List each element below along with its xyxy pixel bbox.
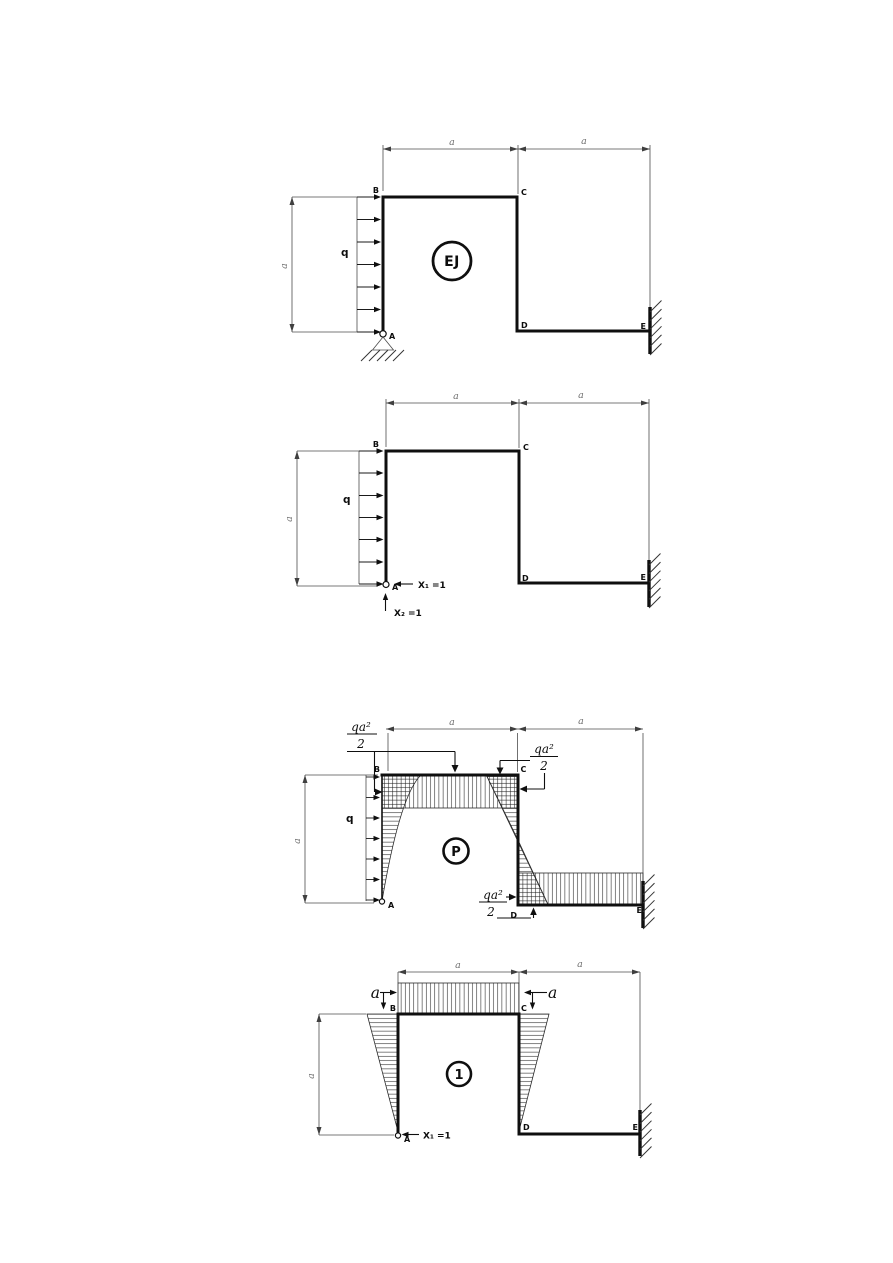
fixed-support-E — [649, 554, 661, 609]
dim-label-a: a — [284, 516, 295, 522]
node-label-B: B — [390, 1004, 396, 1013]
node-label-A: A — [392, 583, 399, 592]
moment-denominator: 2 — [356, 737, 365, 751]
load-state-label: P — [451, 845, 461, 860]
dim-label-a: a — [292, 838, 303, 844]
redundant-x2-label: X₂ =1 — [394, 609, 422, 619]
load-label: q — [343, 494, 351, 506]
released-pin-A — [383, 582, 389, 588]
dim-label-a: a — [453, 391, 459, 402]
distributed-load-q: q — [346, 774, 380, 902]
unit-state-badge: 1 — [447, 1062, 471, 1086]
figure-primary-system: a a a q X₁ =1 — [284, 390, 661, 619]
moment-region-column-AB — [367, 1014, 398, 1132]
node-label-C: C — [521, 765, 527, 774]
load-state-badge: P — [444, 839, 469, 864]
released-pin-A — [379, 899, 384, 904]
dim-label-a: a — [449, 717, 455, 728]
ordinate-label: a — [548, 984, 557, 1002]
node-label-E: E — [641, 322, 646, 331]
node-label-E: E — [633, 1123, 638, 1132]
dim-label-a: a — [455, 960, 461, 971]
node-label-B: B — [374, 765, 380, 774]
redundant-x1-label: X₁ =1 — [418, 581, 446, 591]
node-label-D: D — [510, 911, 517, 920]
structural-analysis-worksheet: a a a q — [0, 0, 893, 1263]
unit-state-label: 1 — [454, 1068, 463, 1083]
distributed-load-q: q — [343, 448, 384, 586]
load-label: q — [341, 247, 349, 259]
node-label-B: B — [373, 186, 379, 195]
node-label-D: D — [522, 574, 529, 583]
pin-support-A — [361, 331, 404, 361]
dim-label-a: a — [449, 137, 455, 148]
stiffness-badge: EJ — [433, 242, 471, 280]
moment-denominator: 2 — [539, 759, 548, 773]
figure-m1-diagram: a a a a a — [306, 959, 652, 1158]
node-label-D: D — [521, 321, 528, 330]
moment-numerator: qa² — [351, 720, 371, 734]
node-label-A: A — [388, 901, 395, 910]
distributed-load-q: q — [341, 194, 381, 334]
moment-denominator: 2 — [486, 905, 495, 919]
node-label-C: C — [523, 443, 529, 452]
dim-label-a: a — [306, 1073, 317, 1079]
frame-members — [398, 1014, 640, 1134]
released-pin-A — [395, 1133, 400, 1138]
moment-region-column-CD — [519, 1014, 549, 1131]
ordinate-a-at-C: a — [524, 984, 557, 1010]
node-label-E: E — [637, 906, 642, 915]
moment-region-beam-DE — [518, 873, 643, 905]
fixed-support-E — [643, 875, 655, 930]
node-label-C: C — [521, 1004, 527, 1013]
dim-label-a: a — [577, 959, 583, 970]
moment-numerator: qa² — [534, 742, 554, 756]
dim-label-a: a — [578, 716, 584, 727]
stiffness-label: EJ — [444, 254, 460, 270]
node-label-C: C — [521, 188, 527, 197]
dim-label-a: a — [279, 263, 290, 269]
node-label-E: E — [641, 573, 646, 582]
fixed-support-E — [640, 1104, 652, 1159]
figure-mp-diagram: a a a — [292, 716, 655, 929]
load-label: q — [346, 813, 354, 825]
dimension-left: a — [284, 451, 382, 586]
dimension-left: a — [292, 775, 378, 903]
node-label-D: D — [523, 1123, 530, 1132]
moment-numerator: qa² — [483, 888, 503, 902]
node-label-A: A — [389, 332, 396, 341]
fixed-support-E — [650, 301, 662, 356]
moment-region-beam-BC — [398, 983, 519, 1014]
frame-members — [383, 197, 650, 331]
redundant-x1: X₁ =1 — [394, 581, 446, 591]
node-label-B: B — [373, 440, 379, 449]
dim-label-a: a — [578, 390, 584, 401]
redundant-x1-label: X₁ =1 — [423, 1132, 451, 1142]
frame-members — [386, 451, 649, 583]
node-label-A: A — [404, 1135, 411, 1144]
dim-label-a: a — [581, 136, 587, 147]
redundant-x2: X₂ =1 — [383, 593, 422, 619]
figure-given-system: a a a q — [279, 136, 662, 361]
ordinate-label: a — [371, 984, 380, 1002]
